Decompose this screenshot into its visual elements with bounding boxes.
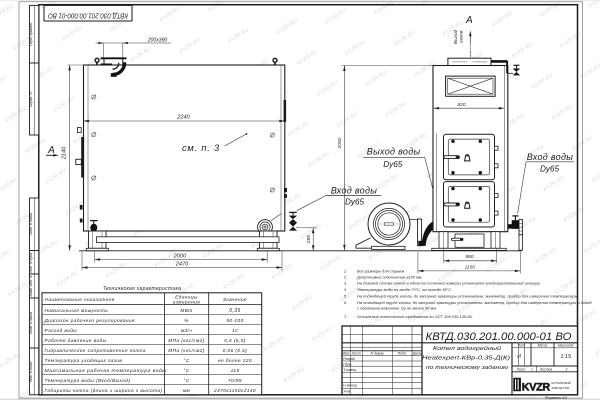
svg-text:Габариты котла (длина х ширина: Габариты котла (длина х ширина х высота) <box>45 388 163 393</box>
svg-text:Подп.: Подп. <box>398 352 407 356</box>
svg-text:50-100: 50-100 <box>226 318 243 323</box>
svg-text:с обратным клапаном. Dу не мен: с обратным клапаном. Dу не менее 50 мм. <box>357 307 437 311</box>
svg-text:Масштаб: Масштаб <box>558 343 574 347</box>
svg-text:Инв. N дубл.: Инв. N дубл. <box>29 252 33 273</box>
svg-text:Dy65: Dy65 <box>383 160 403 169</box>
svg-text:200х390: 200х390 <box>147 37 168 43</box>
svg-text:А: А <box>465 15 473 26</box>
svg-text:Взам. инв. N: Взам. инв. N <box>29 275 33 296</box>
svg-text:Температура воды на входе 70°: Температура воды на входе 70°С, на выход… <box>357 288 452 292</box>
svg-text:Справ. N°: Справ. N° <box>29 90 33 107</box>
svg-text:Все размеры для справок.: Все размеры для справок. <box>357 269 406 273</box>
svg-text:Расход воды: Расход воды <box>45 328 78 333</box>
svg-text:Остальные технические требован: Остальные технические требования по ОСТ … <box>357 315 473 319</box>
svg-text:Т.контр.: Т.контр. <box>343 368 357 372</box>
svg-text:2140: 2140 <box>61 146 67 160</box>
svg-text:1150: 1150 <box>465 264 476 270</box>
svg-text:2: 2 <box>565 367 568 371</box>
svg-text:1:15: 1:15 <box>560 354 572 360</box>
svg-text:Выход: Выход <box>453 29 459 44</box>
svg-text:Допустимые отклонения ±100 мм: Допустимые отклонения ±100 мм. <box>356 276 423 280</box>
svg-text:Значение: Значение <box>223 297 247 302</box>
svg-text:газов: газов <box>460 30 465 43</box>
svg-text:см. п. 3: см. п. 3 <box>182 143 220 153</box>
svg-text:2050: 2050 <box>337 137 343 149</box>
svg-text:На боковой стенке котла в обла: На боковой стенке котла в области топочн… <box>357 282 541 286</box>
svg-text:KVZR: KVZR <box>522 382 551 394</box>
svg-text:7.: 7. <box>344 315 347 319</box>
svg-text:Техническая характеристика: Техническая характеристика <box>103 286 182 292</box>
svg-text:%: % <box>184 318 189 323</box>
svg-text:2.: 2. <box>343 276 347 280</box>
svg-text:Наименование показателя: Наименование показателя <box>45 297 115 302</box>
svg-text:580: 580 <box>465 254 473 260</box>
svg-text:Утв.: Утв. <box>343 390 351 394</box>
svg-text:Номинальная мощность: Номинальная мощность <box>45 308 109 313</box>
svg-text:Масса: Масса <box>538 343 548 347</box>
svg-text:мм: мм <box>183 388 191 393</box>
svg-text:°С: °С <box>183 378 189 383</box>
svg-text:820: 820 <box>457 102 465 108</box>
svg-text:Выход воды: Выход воды <box>367 147 421 157</box>
svg-text:Dy65: Dy65 <box>540 165 560 174</box>
svg-text:Инв. N подл.: Инв. N подл. <box>29 361 33 382</box>
svg-text:0,06 (0,6): 0,06 (0,6) <box>223 348 248 353</box>
svg-text:1.: 1. <box>344 269 347 273</box>
svg-text:КВТД.030.201.00.000-01 ВО: КВТД.030.201.00.000-01 ВО <box>48 11 128 18</box>
svg-text:Лит.: Лит. <box>517 343 526 347</box>
svg-text:На отводящей трубе котла, до з: На отводящей трубе котла, до запорной ар… <box>357 301 592 305</box>
svg-text:12: 12 <box>232 328 238 333</box>
svg-text:Формат А3: Формат А3 <box>545 395 568 400</box>
svg-text:КВТД.030.201.00.000-01 ВО: КВТД.030.201.00.000-01 ВО <box>426 331 573 343</box>
svg-text:6.: 6. <box>344 301 347 305</box>
svg-text:Гидравлическое сопротивление к: Гидравлическое сопротивление котла <box>45 348 146 353</box>
svg-text:Перв. примен.: Перв. примен. <box>29 22 33 46</box>
svg-text:Диапазон рабочего регулировани: Диапазон рабочего регулирования <box>44 318 136 323</box>
svg-text:МПа (кгс/см2): МПа (кгс/см2) <box>168 338 204 343</box>
svg-text:3.: 3. <box>344 282 347 286</box>
svg-text:Dy65: Dy65 <box>345 198 365 207</box>
svg-text:N докум.: N докум. <box>371 352 385 356</box>
svg-text:°С: °С <box>183 358 189 363</box>
svg-text:КОТЕЛЬНЫЙ: КОТЕЛЬНЫЙ <box>552 381 571 385</box>
svg-text:70/95: 70/95 <box>228 378 242 383</box>
svg-text:Рабочее давление воды: Рабочее давление воды <box>45 338 107 343</box>
svg-text:И: И <box>517 354 521 360</box>
svg-text:м3/ч: м3/ч <box>181 328 192 333</box>
svg-text:2470х1150х2140: 2470х1150х2140 <box>213 388 256 393</box>
svg-text:Листов: Листов <box>539 367 553 371</box>
svg-text:МВт: МВт <box>180 308 192 313</box>
svg-text:0,6 (6,0): 0,6 (6,0) <box>224 338 246 343</box>
svg-text:Вход воды: Вход воды <box>331 186 377 196</box>
svg-text:Вход воды: Вход воды <box>527 152 573 162</box>
svg-text:Котел водогрейный: Котел водогрейный <box>433 345 501 352</box>
svg-text:по техническому заданию: по техническому заданию <box>426 365 508 371</box>
svg-text:2000: 2000 <box>173 253 187 259</box>
svg-text:5.: 5. <box>344 295 347 299</box>
svg-text:МПа (кгс/см2): МПа (кгс/см2) <box>168 348 204 353</box>
svg-text:°С: °С <box>183 368 189 373</box>
svg-text:Лист: Лист <box>351 352 361 356</box>
svg-text:Подп. и дата: Подп. и дата <box>29 312 33 335</box>
svg-text:4.: 4. <box>344 288 347 292</box>
svg-text:0,35: 0,35 <box>229 308 241 314</box>
svg-text:Н.контр.: Н.контр. <box>343 384 357 388</box>
svg-text:255: 255 <box>306 235 312 244</box>
svg-text:Лист: Лист <box>516 367 526 371</box>
svg-text:Температура воды (Вход/Выход): Температура воды (Вход/Выход) <box>45 378 131 383</box>
svg-text:1: 1 <box>531 367 533 371</box>
svg-text:Пров.: Пров. <box>343 362 352 366</box>
svg-text:2470: 2470 <box>175 261 189 267</box>
svg-text:115: 115 <box>231 368 240 373</box>
svg-text:Дата: Дата <box>412 352 422 356</box>
svg-text:Максимальная рабочая температу: Максимальная рабочая температура воды <box>45 368 167 373</box>
svg-text:Температура уходящих газов: Температура уходящих газов <box>45 358 123 363</box>
svg-text:Изм.: Изм. <box>342 352 349 356</box>
svg-text:измерения: измерения <box>173 300 201 305</box>
svg-text:Разраб.: Разраб. <box>343 357 355 361</box>
svg-text:Подп. и дата: Подп. и дата <box>29 213 33 236</box>
svg-text:не более 220: не более 220 <box>218 358 252 363</box>
svg-text:ЗАВОД РЭП: ЗАВОД РЭП <box>552 386 570 390</box>
svg-text:На подводящей трубе котла, д: На подводящей трубе котла, до запорной а… <box>357 295 579 299</box>
svg-text:2240: 2240 <box>176 114 190 120</box>
svg-text:Heatexpert-КВр-0,35-Д(К): Heatexpert-КВр-0,35-Д(К) <box>422 356 511 362</box>
